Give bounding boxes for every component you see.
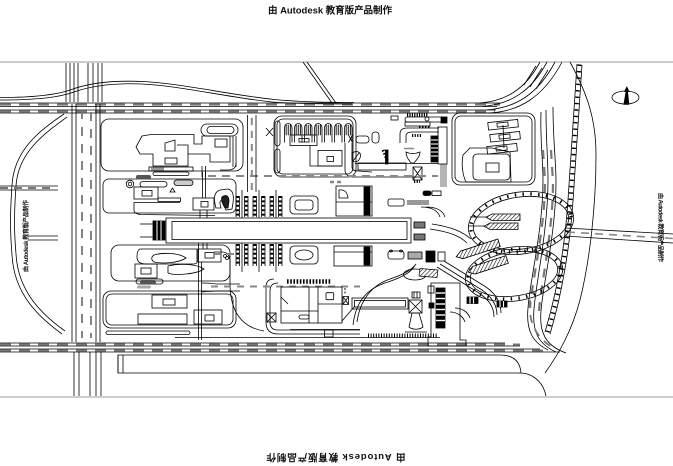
svg-text:由 Autodesk 教育版产品制作: 由 Autodesk 教育版产品制作 <box>266 451 405 463</box>
svg-text:由 Autodesk 教育版产品制作: 由 Autodesk 教育版产品制作 <box>657 193 665 262</box>
svg-text:由 Autodesk 教育版产品制作: 由 Autodesk 教育版产品制作 <box>268 5 392 17</box>
